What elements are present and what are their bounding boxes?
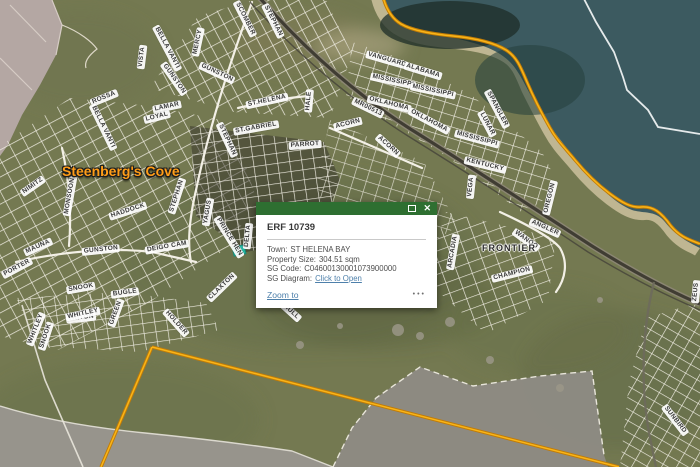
map-viewport[interactable]: VISTABELLA VANTIMERCYGUNSTONGUNSTONROSSA… [0,0,700,467]
close-icon[interactable]: ✕ [423,204,431,213]
popup-footer: Zoom to ••• [256,283,437,308]
feature-popup: ✕ ERF 10739 Town:ST HELENA BAY Property … [256,202,437,308]
zoom-to-link[interactable]: Zoom to [267,290,299,300]
field-sg-diagram: SG Diagram:Click to Open [267,274,426,284]
sg-diagram-link[interactable]: Click to Open [315,274,362,283]
popup-body: ERF 10739 Town:ST HELENA BAY Property Si… [256,215,437,283]
field-property-size: Property Size:304.51 sqm [267,255,426,265]
more-options-button[interactable]: ••• [413,292,426,298]
field-town: Town:ST HELENA BAY [267,245,426,255]
maximize-icon[interactable] [408,205,416,212]
popup-divider [267,239,426,240]
popup-title: ERF 10739 [267,222,426,233]
selected-parcel-highlight[interactable] [232,245,246,256]
field-sg-code: SG Code:C04600130001073900000 [267,264,426,274]
popup-header: ✕ [256,202,437,215]
shore-vegetation-2 [475,45,585,115]
